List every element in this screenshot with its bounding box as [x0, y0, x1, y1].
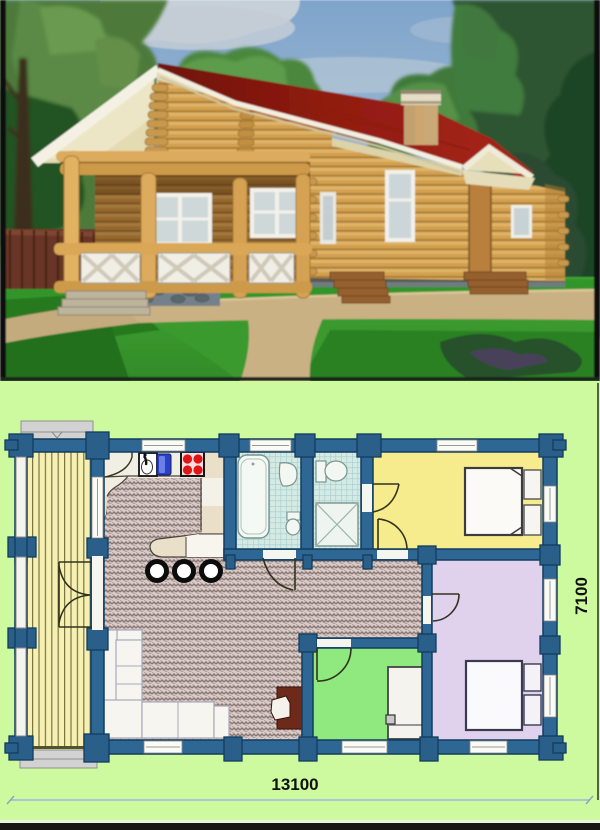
svg-text:13100: 13100: [271, 775, 318, 794]
svg-text:7100: 7100: [572, 577, 591, 615]
